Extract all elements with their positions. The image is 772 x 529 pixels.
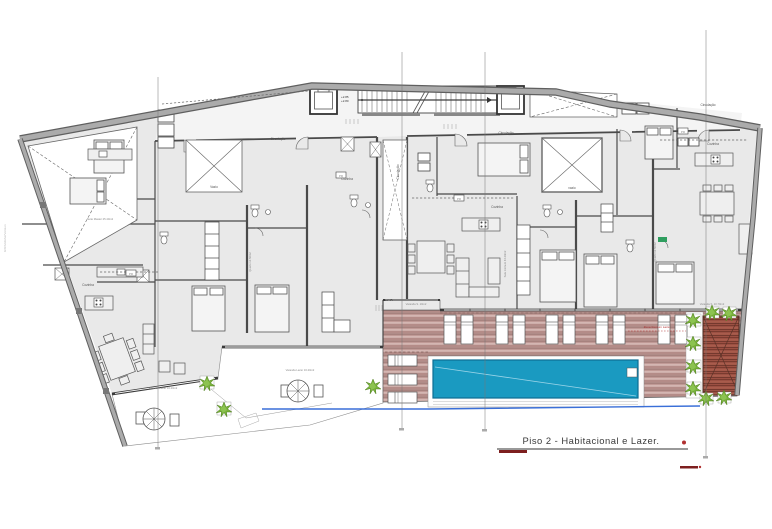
pool-ladder — [627, 368, 637, 377]
label-circulacao: Circulação — [700, 103, 715, 107]
label-room: Quarto 12.50m2 — [653, 242, 657, 262]
stove-icon — [711, 155, 720, 164]
label-cozinha: Cozinha — [491, 205, 503, 209]
dining-set-right — [700, 185, 734, 222]
label-circulacao: Circulação — [498, 131, 513, 135]
label-zona-comum: Zona Comum Lazer — [644, 325, 671, 329]
red-mark-dot — [699, 466, 701, 468]
label-room: Sala Comum 44.20m2 — [503, 250, 507, 277]
publisher-watermark: GSPublisherVersion — [3, 224, 7, 252]
green-marker — [658, 237, 667, 242]
label-cozinha: Cozinha — [82, 283, 94, 287]
label-varanda-lazer: Varanda Lazer 16.20m2 — [149, 386, 178, 390]
label-circulacao: Circulação — [270, 137, 285, 141]
dining-set-center — [408, 241, 454, 274]
label-varanda: Varanda S. 10.70m2 — [700, 302, 725, 306]
label-cozinha: Cozinha — [707, 142, 719, 146]
label-level: +2.35 — [385, 298, 393, 302]
label-varanda-lazer: Varanda Lazer 16.20m2 — [286, 368, 315, 372]
red-mark — [680, 466, 698, 469]
pool-water — [433, 360, 638, 398]
label-circulacao: Circulação — [396, 164, 400, 179]
title-dot — [682, 441, 686, 445]
label-vazio: Vazio — [210, 185, 218, 189]
floor-plan-drawing: GSPublisherVersion — [0, 0, 772, 529]
plan-title: Piso 2 - Habitacional e Lazer. — [523, 435, 660, 446]
stove-icon — [94, 298, 103, 307]
stove-icon — [479, 220, 488, 229]
label-varanda: Varanda S. 10m2 — [406, 302, 427, 306]
label-vazio: vazio — [568, 186, 576, 190]
title-accent-bar — [499, 450, 527, 453]
floor-plan-sheet: GSPublisherVersion — [0, 0, 772, 529]
swimming-pool — [428, 356, 644, 407]
label-room: Quarto 12.50m2 — [248, 252, 252, 272]
label-level: +2.80 — [341, 99, 349, 103]
title-block: Piso 2 - Habitacional e Lazer. — [497, 435, 701, 469]
label-room: Suite Master 25.40m2 — [87, 217, 114, 221]
